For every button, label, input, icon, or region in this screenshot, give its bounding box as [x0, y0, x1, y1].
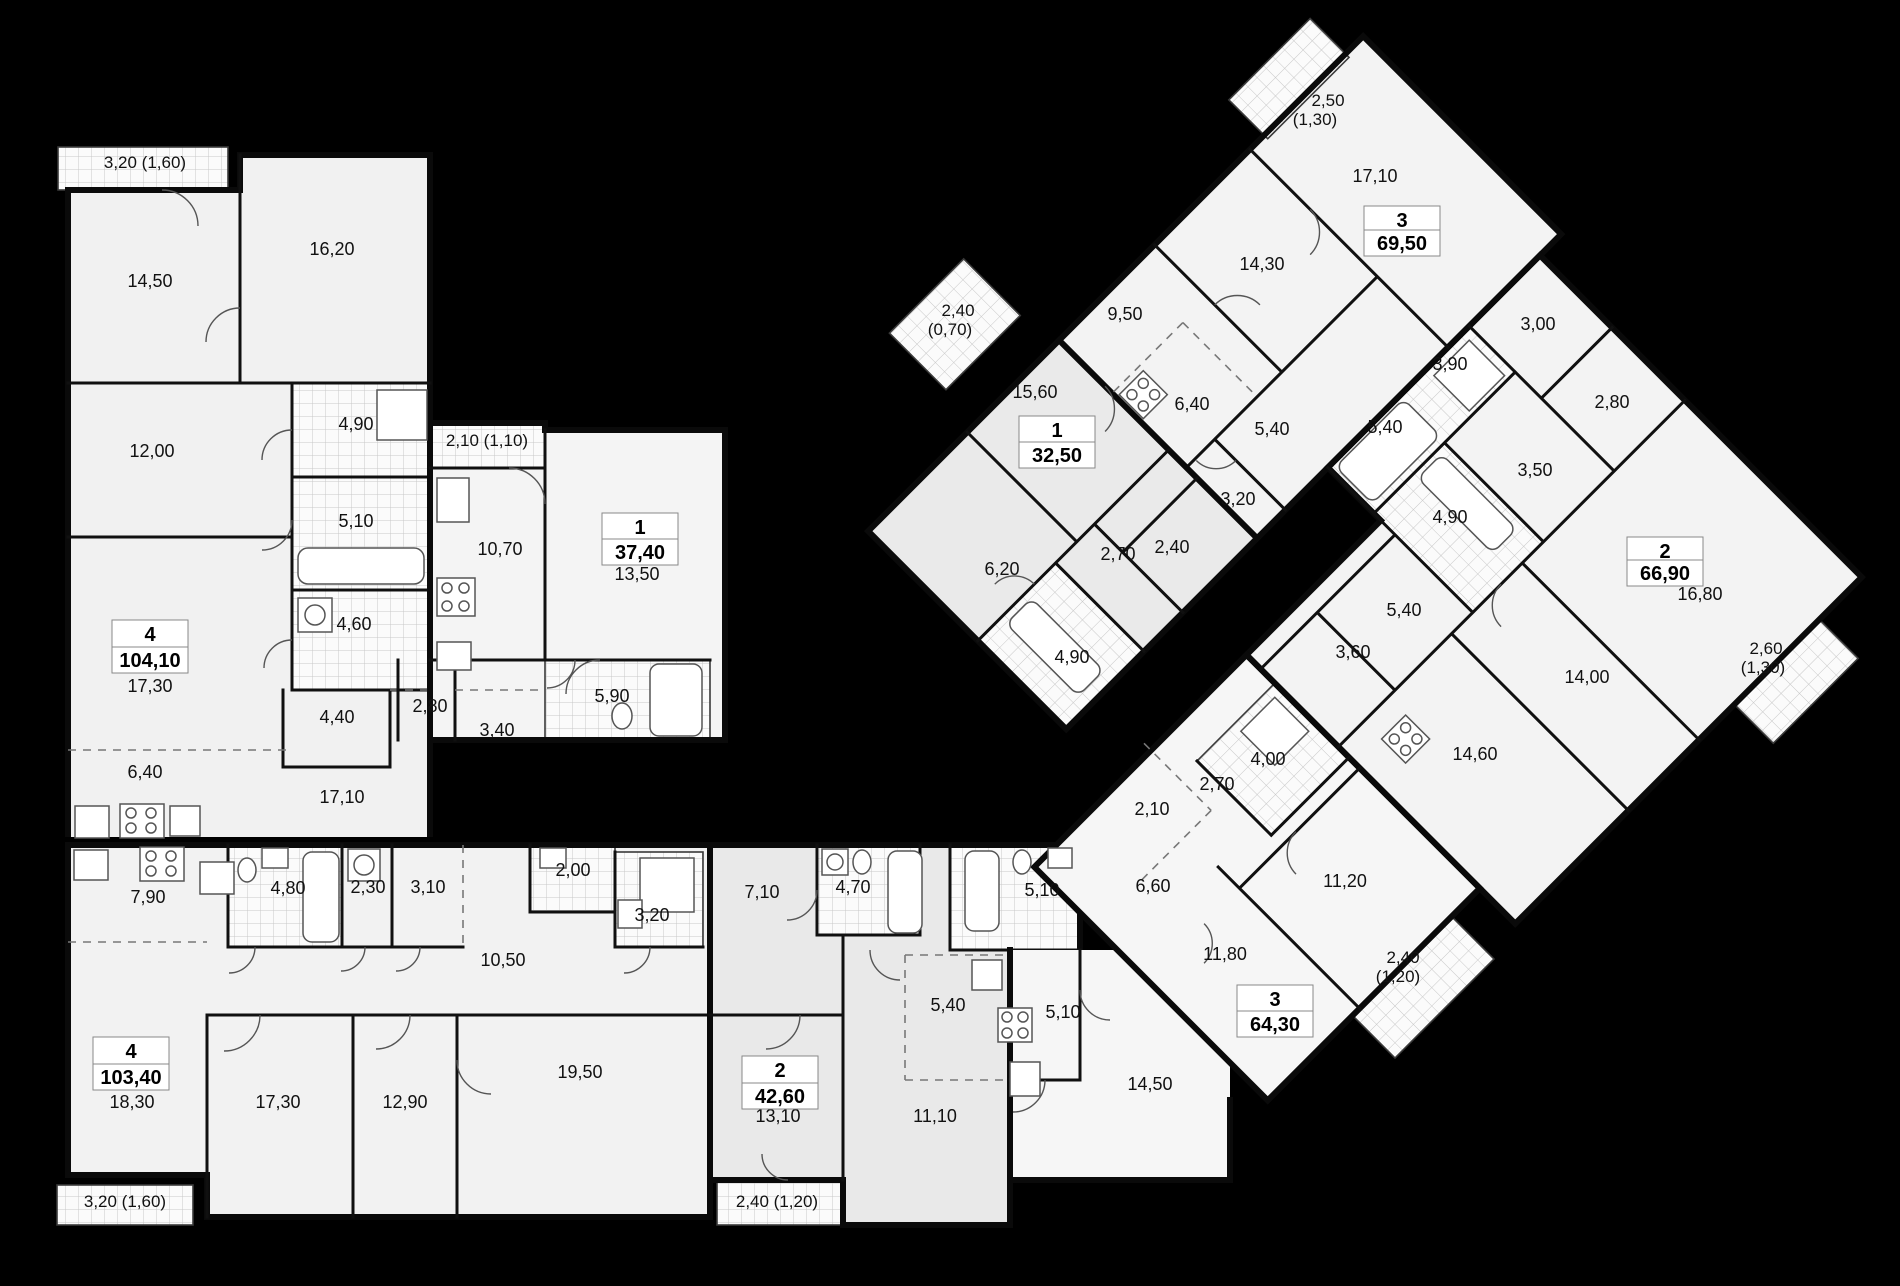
room-area-label: 17,30 [255, 1092, 300, 1112]
room-area-label: 16,80 [1677, 584, 1722, 604]
room-area-label: 2,10 [1134, 799, 1169, 819]
room-area-label: 10,50 [480, 950, 525, 970]
room-area-label: 6,40 [1174, 394, 1209, 414]
room-area-label: 10,70 [477, 539, 522, 559]
apartment-total-area: 37,40 [615, 542, 665, 564]
room-area-label: 3,20 [1220, 489, 1255, 509]
room-area-label: 11,20 [1323, 871, 1367, 891]
apartment-rooms-count: 3 [1269, 989, 1280, 1011]
apartment-rooms-count: 2 [774, 1060, 785, 1082]
room-area-label: 13,50 [614, 564, 659, 584]
balcony-area-label: (1,20) [1376, 967, 1420, 986]
apartment-badge: 266,90 [1627, 537, 1703, 586]
room-area-label: 3,00 [1520, 314, 1555, 334]
room-area-label: 6,40 [127, 762, 162, 782]
room-area-label: 4,00 [1250, 749, 1285, 769]
room-area-label: 5,90 [594, 686, 629, 706]
room-area-label: 12,00 [129, 441, 174, 461]
apartment-rooms-count: 3 [1396, 210, 1407, 232]
room-area-label: 2,00 [555, 860, 590, 880]
room-area-label: 3,60 [1335, 642, 1370, 662]
room-area-label: 5,10 [1024, 880, 1059, 900]
room-area-label: 5,10 [338, 511, 373, 531]
apartment-rooms-count: 1 [634, 517, 645, 539]
room-area-label: 5,40 [930, 995, 965, 1015]
apartment-total-area: 64,30 [1250, 1014, 1300, 1036]
room-area-label: 17,10 [1352, 166, 1397, 186]
balcony-area-label: 2,50 [1311, 91, 1344, 110]
balcony-area-label: 2,10 (1,10) [446, 431, 528, 450]
apartment-total-area: 104,10 [119, 650, 180, 672]
apartment-badge: 4104,10 [112, 620, 188, 673]
room-area-label: 3,10 [410, 877, 445, 897]
room-area-label: 3,40 [479, 720, 514, 740]
room-area-label: 9,50 [1107, 304, 1142, 324]
apartment-total-area: 42,60 [755, 1086, 805, 1108]
room-area-label: 2,80 [412, 696, 447, 716]
balcony-area-label: 3,20 (1,60) [84, 1192, 166, 1211]
apartment-badge: 4103,40 [93, 1037, 169, 1090]
room-area-label: 7,10 [744, 882, 779, 902]
room-area-label: 4,80 [270, 878, 305, 898]
balcony-area-label: (1,30) [1293, 110, 1337, 129]
room-area-label: 4,70 [835, 877, 870, 897]
floor-plan-page: 3,20 (1,60)14,5016,2012,004,902,10 (1,10… [0, 0, 1900, 1286]
room-area-label: 14,00 [1564, 667, 1609, 687]
room-area-label: 4,90 [1432, 507, 1467, 527]
room-area-label: 6,20 [984, 559, 1019, 579]
apartment-total-area: 69,50 [1377, 233, 1427, 255]
room-area-label: 11,80 [1203, 944, 1247, 964]
room-area-label: 14,50 [1127, 1074, 1172, 1094]
apartment-total-area: 103,40 [100, 1067, 161, 1089]
apartment-rooms-count: 2 [1659, 541, 1670, 563]
room-area-label: 3,90 [1432, 354, 1467, 374]
room-area-label: 3,50 [1517, 460, 1552, 480]
balcony-area-label: 2,60 [1749, 639, 1782, 658]
room-area-label: 7,90 [130, 887, 165, 907]
apartment-total-area: 32,50 [1032, 445, 1082, 467]
room-area-label: 15,60 [1012, 382, 1057, 402]
room-area-label: 3,20 [634, 905, 669, 925]
room-area-label: 4,60 [336, 614, 371, 634]
room-area-label: 4,90 [338, 414, 373, 434]
apartment-104-10 [58, 147, 430, 840]
balcony-area-label: 2,40 [941, 301, 974, 320]
apartment-rooms-count: 1 [1051, 420, 1062, 442]
room-area-label: 2,40 [1154, 537, 1189, 557]
apartment-badge: 369,50 [1364, 206, 1440, 256]
apartment-badge: 137,40 [602, 513, 678, 565]
apartment-total-area: 66,90 [1640, 563, 1690, 585]
room-area-label: 5,40 [1386, 600, 1421, 620]
room-area-label: 18,30 [109, 1092, 154, 1112]
room-area-label: 2,80 [1594, 392, 1629, 412]
room-area-label: 19,50 [557, 1062, 602, 1082]
balcony-area-label: 3,20 (1,60) [104, 153, 186, 172]
apartment-badge: 242,60 [742, 1056, 818, 1109]
apartment-badge: 132,50 [1019, 416, 1095, 468]
room-area-label: 5,40 [1254, 419, 1289, 439]
room-area-label: 2,70 [1100, 544, 1135, 564]
balcony-area-label: (0,70) [928, 320, 972, 339]
room-area-label: 17,10 [319, 787, 364, 807]
room-area-label: 2,30 [350, 877, 385, 897]
floor-plan-canvas: 3,20 (1,60)14,5016,2012,004,902,10 (1,10… [0, 0, 1900, 1286]
balcony-area-label: 2,40 [1386, 948, 1419, 967]
balcony-area-label: (1,30) [1741, 658, 1785, 677]
room-area-label: 16,20 [309, 239, 354, 259]
room-area-label: 5,10 [1045, 1002, 1080, 1022]
apartment-rooms-count: 4 [125, 1041, 137, 1063]
apartment-rooms-count: 4 [144, 624, 156, 646]
balcony-area-label: 2,40 (1,20) [736, 1192, 818, 1211]
room-area-label: 14,30 [1239, 254, 1284, 274]
room-area-label: 5,40 [1367, 417, 1402, 437]
room-area-label: 17,30 [127, 676, 172, 696]
room-area-label: 12,90 [382, 1092, 427, 1112]
apartment-badge: 364,30 [1237, 985, 1313, 1037]
room-area-label: 14,50 [127, 271, 172, 291]
room-area-label: 4,90 [1054, 647, 1089, 667]
room-area-label: 6,60 [1135, 876, 1170, 896]
room-area-label: 2,70 [1199, 774, 1234, 794]
room-area-label: 14,60 [1452, 744, 1497, 764]
room-area-label: 4,40 [319, 707, 354, 727]
room-area-label: 11,10 [913, 1106, 957, 1126]
